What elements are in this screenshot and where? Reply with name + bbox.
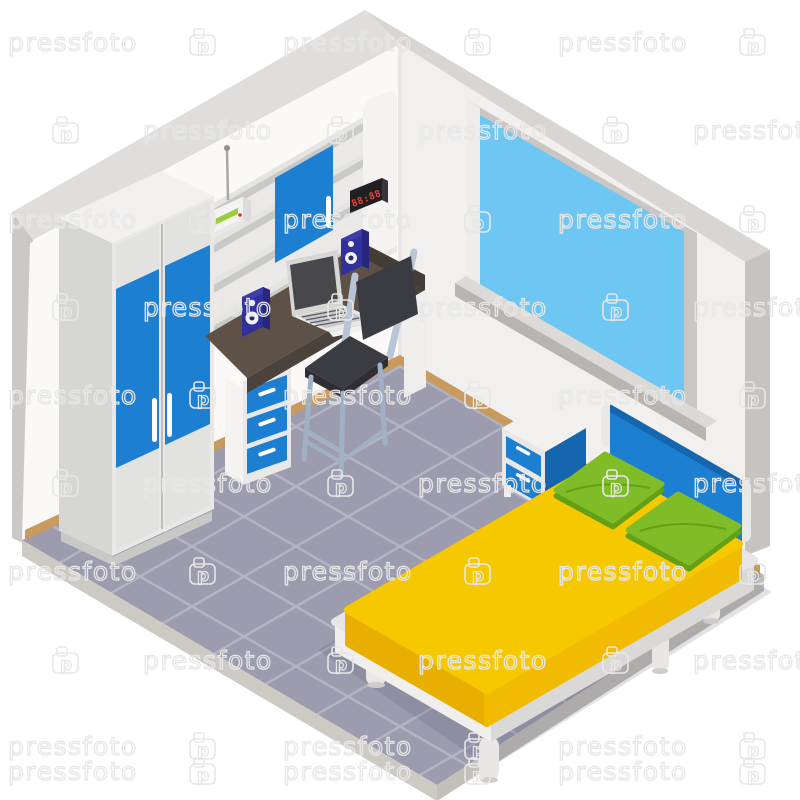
watermark-logo-icon: p — [465, 29, 490, 57]
watermark-logo-icon: p — [740, 29, 765, 57]
svg-text:p: p — [747, 390, 759, 410]
watermark-text: pressfoto — [418, 293, 548, 322]
watermark-text: pressfoto — [283, 381, 413, 410]
router-led — [238, 213, 242, 217]
watermark-text: pressfoto — [283, 28, 413, 57]
svg-text:p: p — [610, 125, 622, 145]
svg-text:p: p — [472, 37, 484, 57]
bed-leg-foot — [652, 668, 668, 674]
wardrobe-handle-left — [152, 398, 157, 442]
svg-text:p: p — [197, 766, 209, 786]
watermark-text: pressfoto — [8, 28, 138, 57]
watermark-logo-icon: p — [740, 733, 765, 761]
watermark-text: pressfoto — [8, 205, 138, 234]
bed-leg-foot — [703, 618, 719, 624]
svg-text:p: p — [472, 214, 484, 234]
watermark-text: pressfoto — [283, 557, 413, 586]
watermark-text: pressfoto — [143, 469, 273, 498]
bed-leg-foot — [367, 682, 385, 688]
watermark-text: pressfoto — [558, 757, 688, 786]
watermark-logo-icon: p — [53, 117, 78, 145]
svg-text:p: p — [197, 37, 209, 57]
watermark-logo-icon: p — [190, 733, 215, 761]
speaker-tweeter — [348, 241, 354, 247]
svg-text:p: p — [197, 214, 209, 234]
svg-text:p: p — [60, 478, 72, 498]
svg-text:p: p — [747, 214, 759, 234]
svg-text:p: p — [335, 302, 347, 322]
router-side — [243, 197, 251, 223]
clock-side — [382, 178, 388, 203]
wardrobe-handle-right — [167, 393, 172, 437]
scene-canvas: 88:88 — [0, 0, 800, 800]
watermark-logo-icon: p — [190, 29, 215, 57]
watermark-text: pressfoto — [143, 116, 273, 145]
svg-text:p: p — [610, 302, 622, 322]
isometric-bedroom-illustration: 88:88 — [0, 0, 800, 800]
watermark-text: pressfoto — [693, 293, 800, 322]
watermark-text: pressfoto — [693, 116, 800, 145]
watermark-text: pressfoto — [418, 469, 548, 498]
svg-text:p: p — [335, 478, 347, 498]
watermark-text: pressfoto — [558, 381, 688, 410]
watermark-text: pressfoto — [283, 205, 413, 234]
router-antenna — [227, 150, 228, 200]
svg-text:p: p — [747, 766, 759, 786]
svg-text:p: p — [335, 655, 347, 675]
svg-text:p: p — [610, 655, 622, 675]
watermark-text: pressfoto — [418, 116, 548, 145]
svg-text:p: p — [472, 766, 484, 786]
watermark-text: pressfoto — [143, 293, 273, 322]
watermark-logo-icon: p — [740, 206, 765, 234]
watermark-text: pressfoto — [8, 757, 138, 786]
svg-text:p: p — [747, 37, 759, 57]
svg-text:p: p — [335, 125, 347, 145]
svg-text:p: p — [197, 390, 209, 410]
svg-text:p: p — [610, 478, 622, 498]
watermark-text: pressfoto — [558, 205, 688, 234]
svg-text:p: p — [747, 566, 759, 586]
watermark-text: pressfoto — [283, 757, 413, 786]
speaker-side — [362, 229, 369, 269]
watermark-text: pressfoto — [558, 557, 688, 586]
watermark-logo-icon: p — [53, 647, 78, 675]
laptop-screen — [290, 256, 338, 310]
speaker-woofer-center — [349, 256, 354, 261]
watermark-logo-icon: p — [190, 758, 215, 786]
watermark-text: pressfoto — [693, 646, 800, 675]
watermark-logo-icon: p — [603, 117, 628, 145]
watermark-logo-icon: p — [740, 758, 765, 786]
watermark-text: pressfoto — [8, 557, 138, 586]
svg-text:p: p — [472, 566, 484, 586]
watermark-text: pressfoto — [693, 469, 800, 498]
watermark-text: pressfoto — [143, 646, 273, 675]
router-antenna-tip — [224, 145, 230, 151]
watermark-text: pressfoto — [558, 28, 688, 57]
svg-text:p: p — [472, 390, 484, 410]
watermark-text: pressfoto — [418, 646, 548, 675]
watermark-text: pressfoto — [8, 381, 138, 410]
svg-text:p: p — [60, 125, 72, 145]
svg-text:p: p — [60, 302, 72, 322]
svg-text:p: p — [60, 655, 72, 675]
svg-text:p: p — [197, 566, 209, 586]
